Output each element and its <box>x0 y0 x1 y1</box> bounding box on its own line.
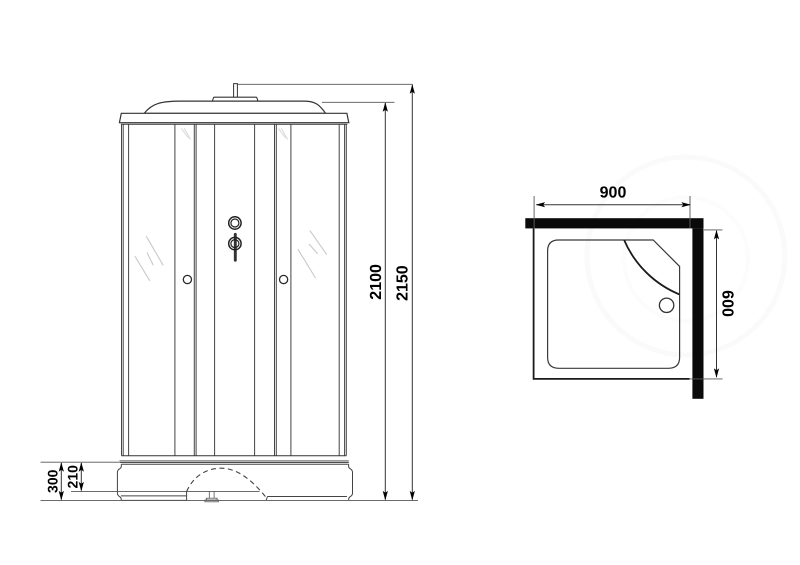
svg-text:900: 900 <box>600 184 627 201</box>
svg-text:300: 300 <box>44 469 60 493</box>
svg-text:2100: 2100 <box>368 264 385 300</box>
svg-text:210: 210 <box>65 465 81 489</box>
svg-text:009: 009 <box>720 290 737 317</box>
svg-text:2150: 2150 <box>395 265 412 301</box>
